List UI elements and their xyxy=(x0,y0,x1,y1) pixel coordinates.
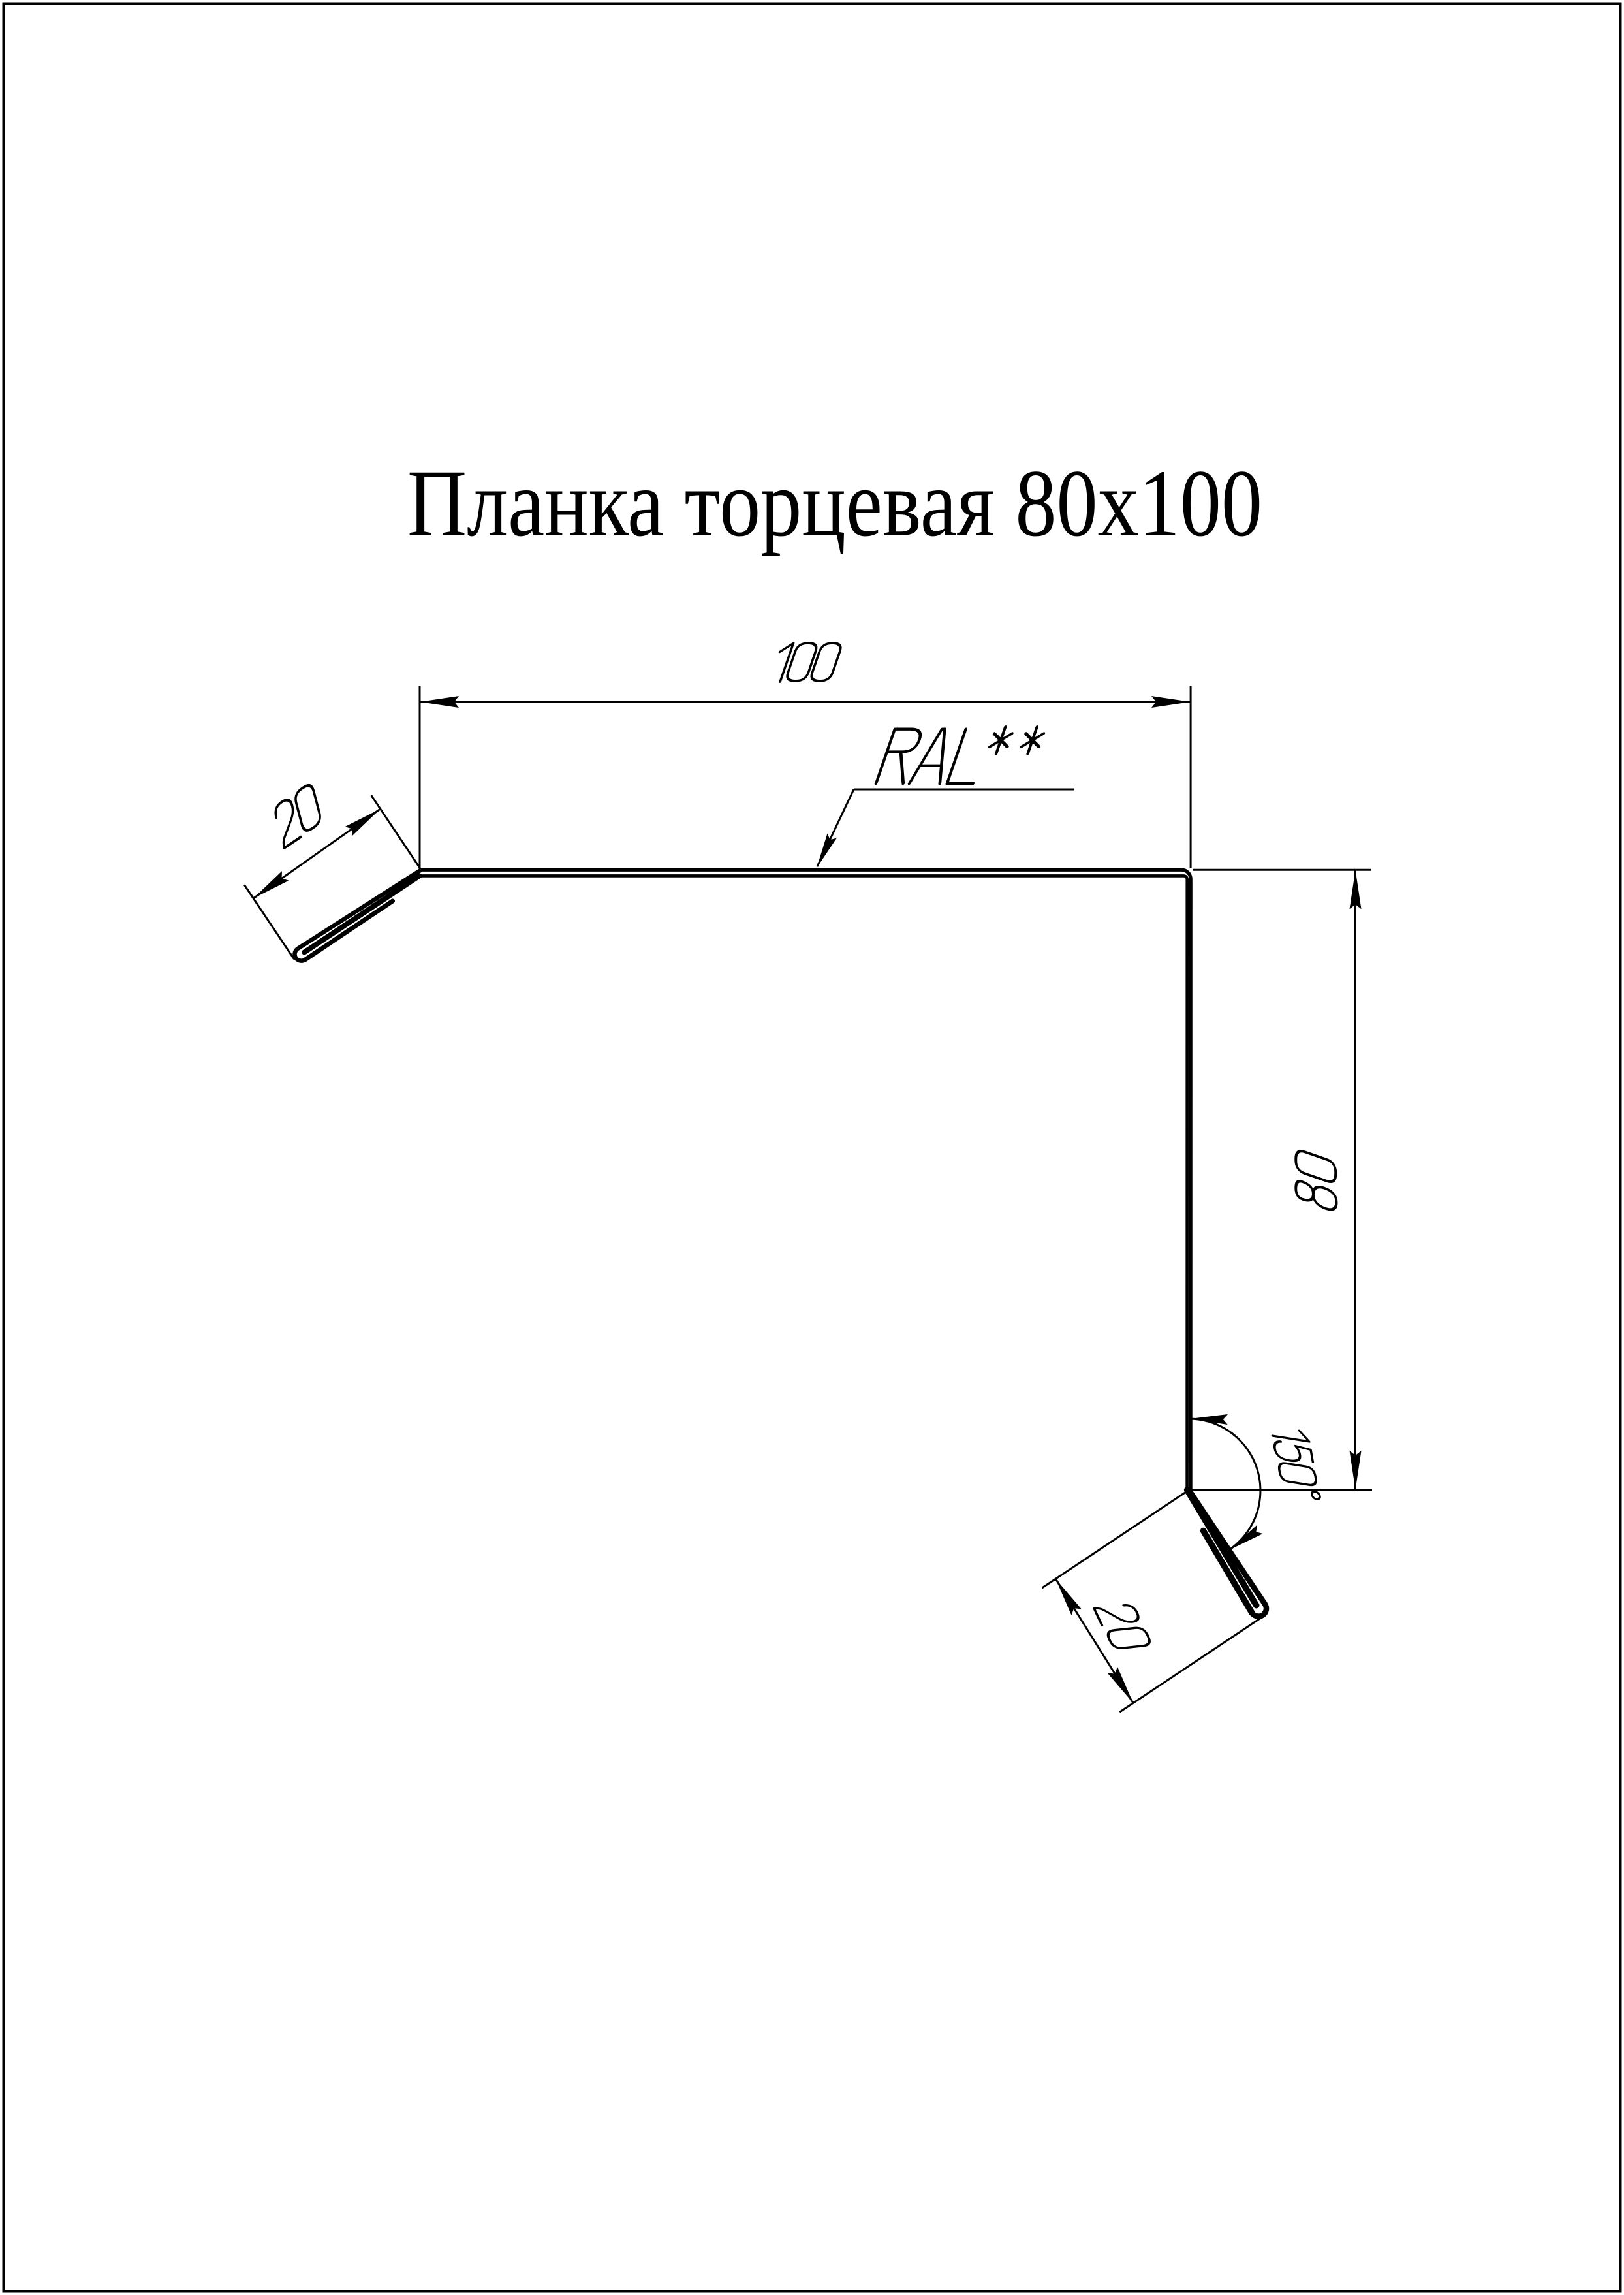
svg-text:Планка торцевая 80x100: Планка торцевая 80x100 xyxy=(407,450,1262,556)
